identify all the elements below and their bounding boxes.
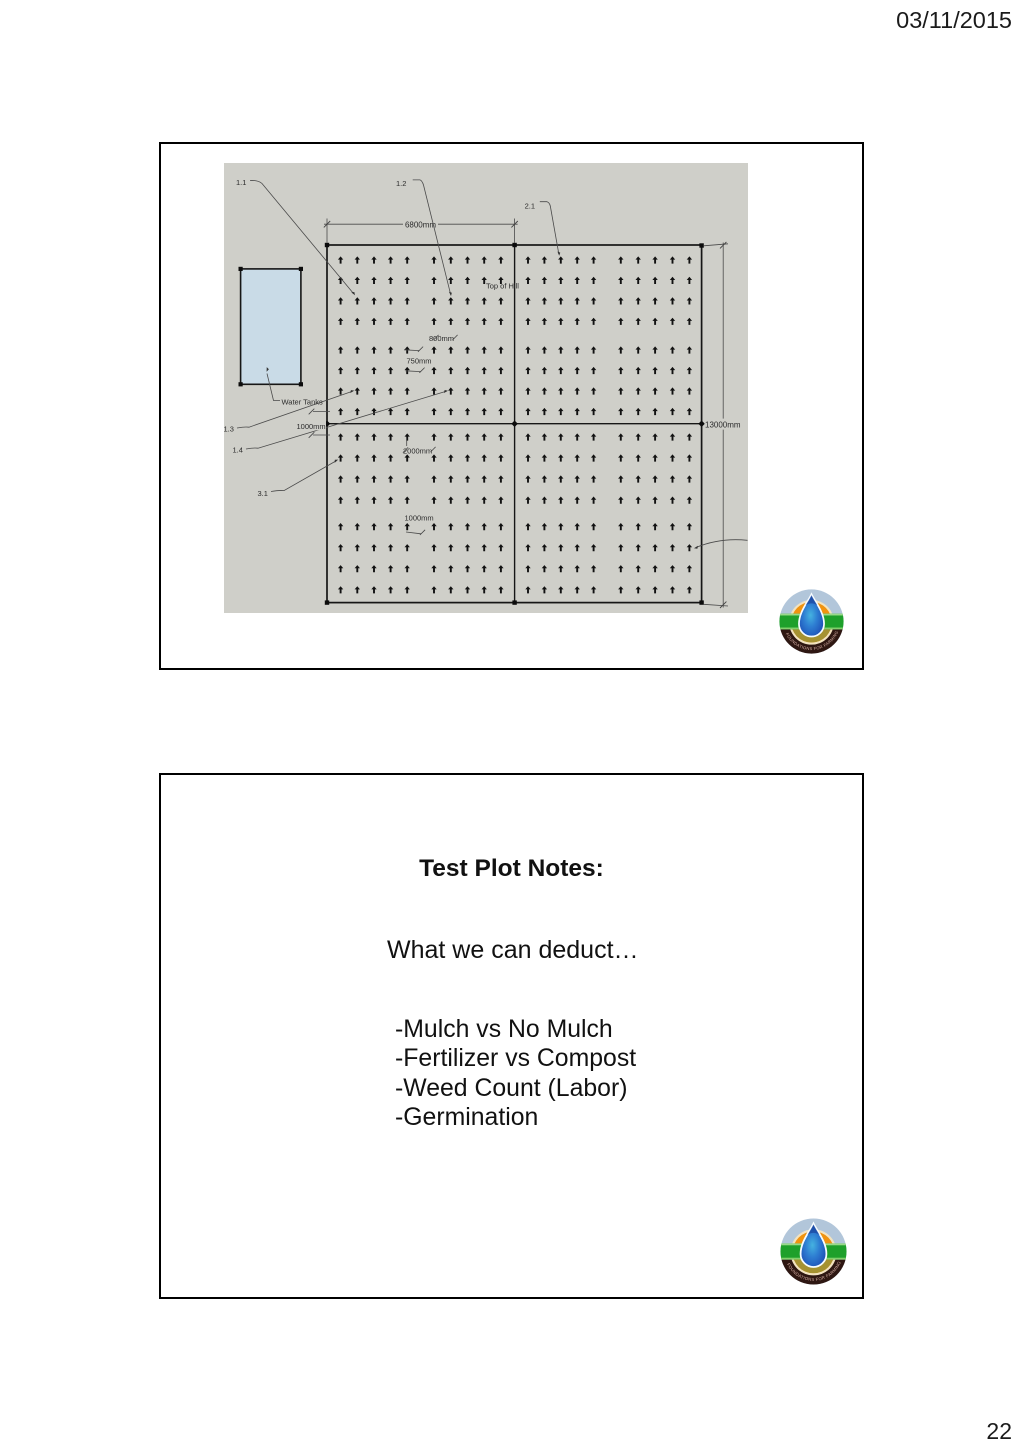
- svg-text:1.1: 1.1: [236, 178, 246, 187]
- svg-text:13000mm: 13000mm: [705, 421, 741, 430]
- svg-text:800mm: 800mm: [429, 334, 454, 343]
- svg-text:6800mm: 6800mm: [405, 221, 436, 230]
- svg-text:1.4: 1.4: [233, 446, 243, 455]
- svg-text:2.1: 2.1: [525, 202, 535, 211]
- svg-text:1.2: 1.2: [396, 179, 406, 188]
- svg-text:1000mm: 1000mm: [405, 514, 434, 523]
- svg-text:Top of Hill: Top of Hill: [486, 282, 519, 291]
- svg-text:Water Tanks: Water Tanks: [282, 398, 324, 407]
- svg-text:1.3: 1.3: [224, 425, 234, 434]
- svg-text:750mm: 750mm: [407, 357, 432, 366]
- svg-text:1000mm: 1000mm: [297, 422, 326, 431]
- svg-text:3.1: 3.1: [258, 489, 268, 498]
